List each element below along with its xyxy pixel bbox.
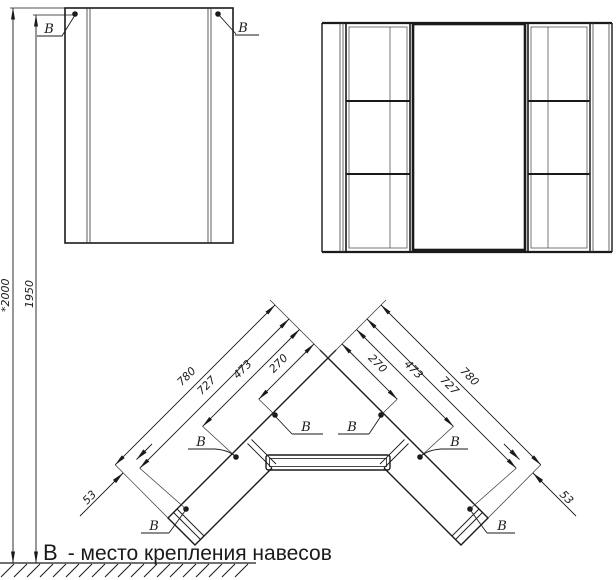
dim-line-270 bbox=[342, 344, 397, 399]
dim-line-727 bbox=[367, 319, 516, 468]
corner-front-bar bbox=[266, 455, 390, 470]
dim-line-270 bbox=[259, 344, 314, 399]
callout-b-label: В bbox=[195, 435, 206, 450]
mirror-door bbox=[413, 24, 525, 250]
callout-b-label: В bbox=[449, 435, 460, 450]
dim-label-53-right: 53 bbox=[557, 488, 576, 507]
dim-label-727-right: 727 bbox=[437, 374, 461, 398]
right-shelf-unit bbox=[528, 23, 590, 252]
left-shelves bbox=[346, 101, 410, 174]
furniture-assembly-drawing: В В *2000 1950 bbox=[0, 0, 616, 580]
dim-label-overall-height: *2000 bbox=[0, 279, 12, 313]
legend-symbol: В bbox=[43, 540, 58, 565]
right-junction-panel bbox=[380, 440, 409, 469]
plan-mount-points bbox=[183, 412, 473, 512]
callout-leader bbox=[471, 511, 515, 533]
plan-b-callouts bbox=[141, 416, 515, 533]
corner-plan-view: 780 727 473 270 780 727 473 270 53 53 В … bbox=[80, 300, 576, 545]
legend-text: - место крепления навесов bbox=[68, 542, 332, 565]
dim-line-780 bbox=[381, 305, 541, 465]
callout-leader bbox=[338, 416, 381, 434]
plan-extension-lines bbox=[115, 300, 541, 518]
callout-b-label: В bbox=[346, 420, 357, 435]
wardrobe-side-panel-lines bbox=[87, 8, 211, 243]
callout-b-label: В bbox=[496, 519, 507, 534]
right-wing-end-panel bbox=[452, 509, 483, 540]
callout-leader bbox=[37, 15, 75, 36]
left-panel-lines bbox=[340, 23, 343, 252]
extension-line bbox=[381, 399, 397, 415]
right-shelves bbox=[528, 101, 590, 174]
callout-b-label: В bbox=[43, 22, 54, 37]
legend: В - место крепления навесов bbox=[43, 540, 332, 565]
mount-point-dot bbox=[72, 11, 78, 17]
extension-line bbox=[259, 399, 275, 415]
dim-label-270-right: 270 bbox=[365, 352, 389, 376]
callout-b-label: В bbox=[148, 519, 159, 534]
extension-line bbox=[470, 468, 516, 509]
extension-line bbox=[115, 465, 168, 518]
corner-front-bar-inner bbox=[270, 459, 387, 467]
dim-label-mount-height: 1950 bbox=[23, 280, 36, 308]
extension-line bbox=[203, 426, 236, 457]
extension-line bbox=[488, 465, 541, 518]
callout-leader bbox=[275, 416, 323, 434]
dim-line-727 bbox=[140, 319, 289, 468]
left-junction-panel bbox=[248, 440, 277, 469]
callout-b-label: В bbox=[237, 21, 248, 36]
height-dimensions: *2000 1950 bbox=[0, 8, 75, 563]
left-shelf-unit bbox=[346, 23, 410, 252]
dim-line-473 bbox=[203, 330, 300, 427]
extension-line bbox=[420, 426, 453, 457]
ground-line bbox=[0, 563, 256, 577]
dim-line-473 bbox=[357, 330, 454, 427]
dim-label-727-left: 727 bbox=[195, 374, 219, 398]
right-shelf-inner-frame bbox=[531, 27, 587, 248]
callout-b-label: В bbox=[300, 420, 311, 435]
callout-leader bbox=[141, 511, 185, 533]
left-wing-end-panel bbox=[174, 509, 205, 540]
dim-label-270-left: 270 bbox=[267, 352, 291, 376]
dim-line-780 bbox=[115, 305, 275, 465]
mirror-cabinet-front-view bbox=[322, 23, 612, 252]
technical-drawing-page: В В *2000 1950 bbox=[0, 0, 616, 580]
extension-line bbox=[140, 468, 186, 509]
ground-hatch bbox=[1, 564, 248, 577]
left-shelf-inner-frame bbox=[349, 27, 407, 248]
dim-label-53-left: 53 bbox=[80, 488, 99, 507]
wardrobe-front-view: В В bbox=[37, 8, 259, 243]
